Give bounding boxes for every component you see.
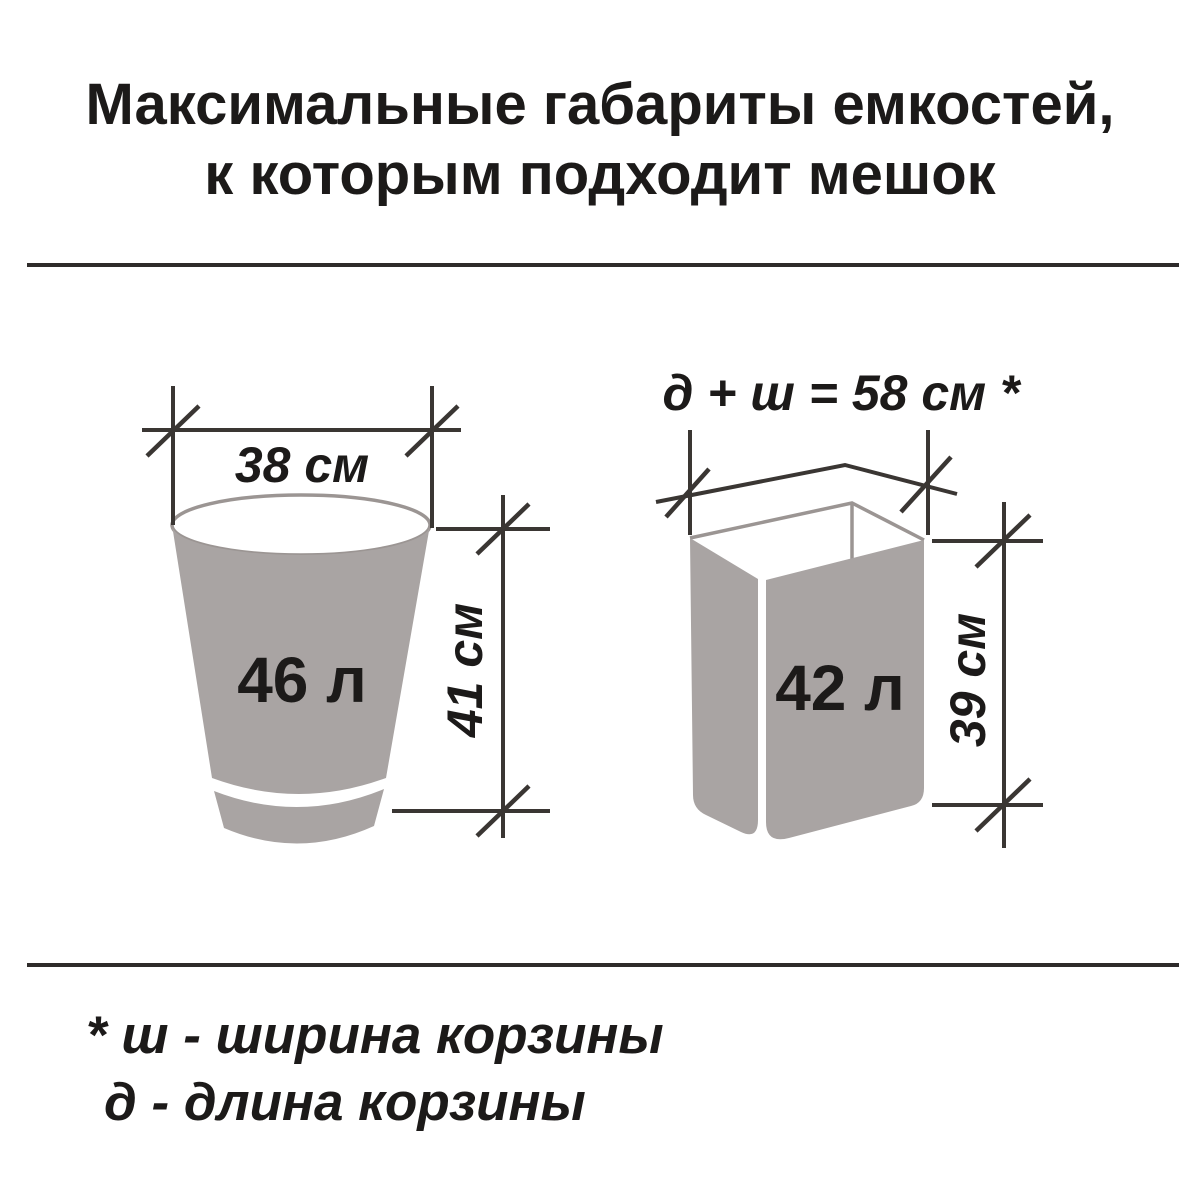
bucket-height-label: 41 см <box>437 603 493 738</box>
round-bucket-figure: 46 л <box>172 495 430 844</box>
rect-bin-figure: 42 л <box>690 503 924 839</box>
bin-left-face <box>690 538 758 834</box>
footnote-line-2: д - длина корзины <box>104 1069 664 1136</box>
bucket-base <box>214 789 384 844</box>
footnote: * ш - ширина корзины д - длина корзины <box>86 1002 664 1136</box>
bottom-divider <box>27 963 1179 967</box>
bin-inner-rim <box>690 503 924 540</box>
bin-height-label: 39 см <box>940 613 996 747</box>
bin-top-dimension: д + ш = 58 см * <box>656 365 1022 535</box>
bucket-volume-label: 46 л <box>237 644 367 716</box>
bin-top-dimension-label: д + ш = 58 см * <box>663 365 1023 421</box>
footnote-line-1: * ш - ширина корзины <box>86 1002 664 1069</box>
bin-volume-label: 42 л <box>775 652 905 724</box>
bin-height-dimension: 39 см <box>932 502 1043 848</box>
bucket-rim <box>172 495 430 555</box>
infographic-page: Максимальные габариты емкостей, к которы… <box>0 0 1200 1200</box>
dimension-line <box>656 465 957 502</box>
bucket-width-label: 38 см <box>235 437 369 493</box>
